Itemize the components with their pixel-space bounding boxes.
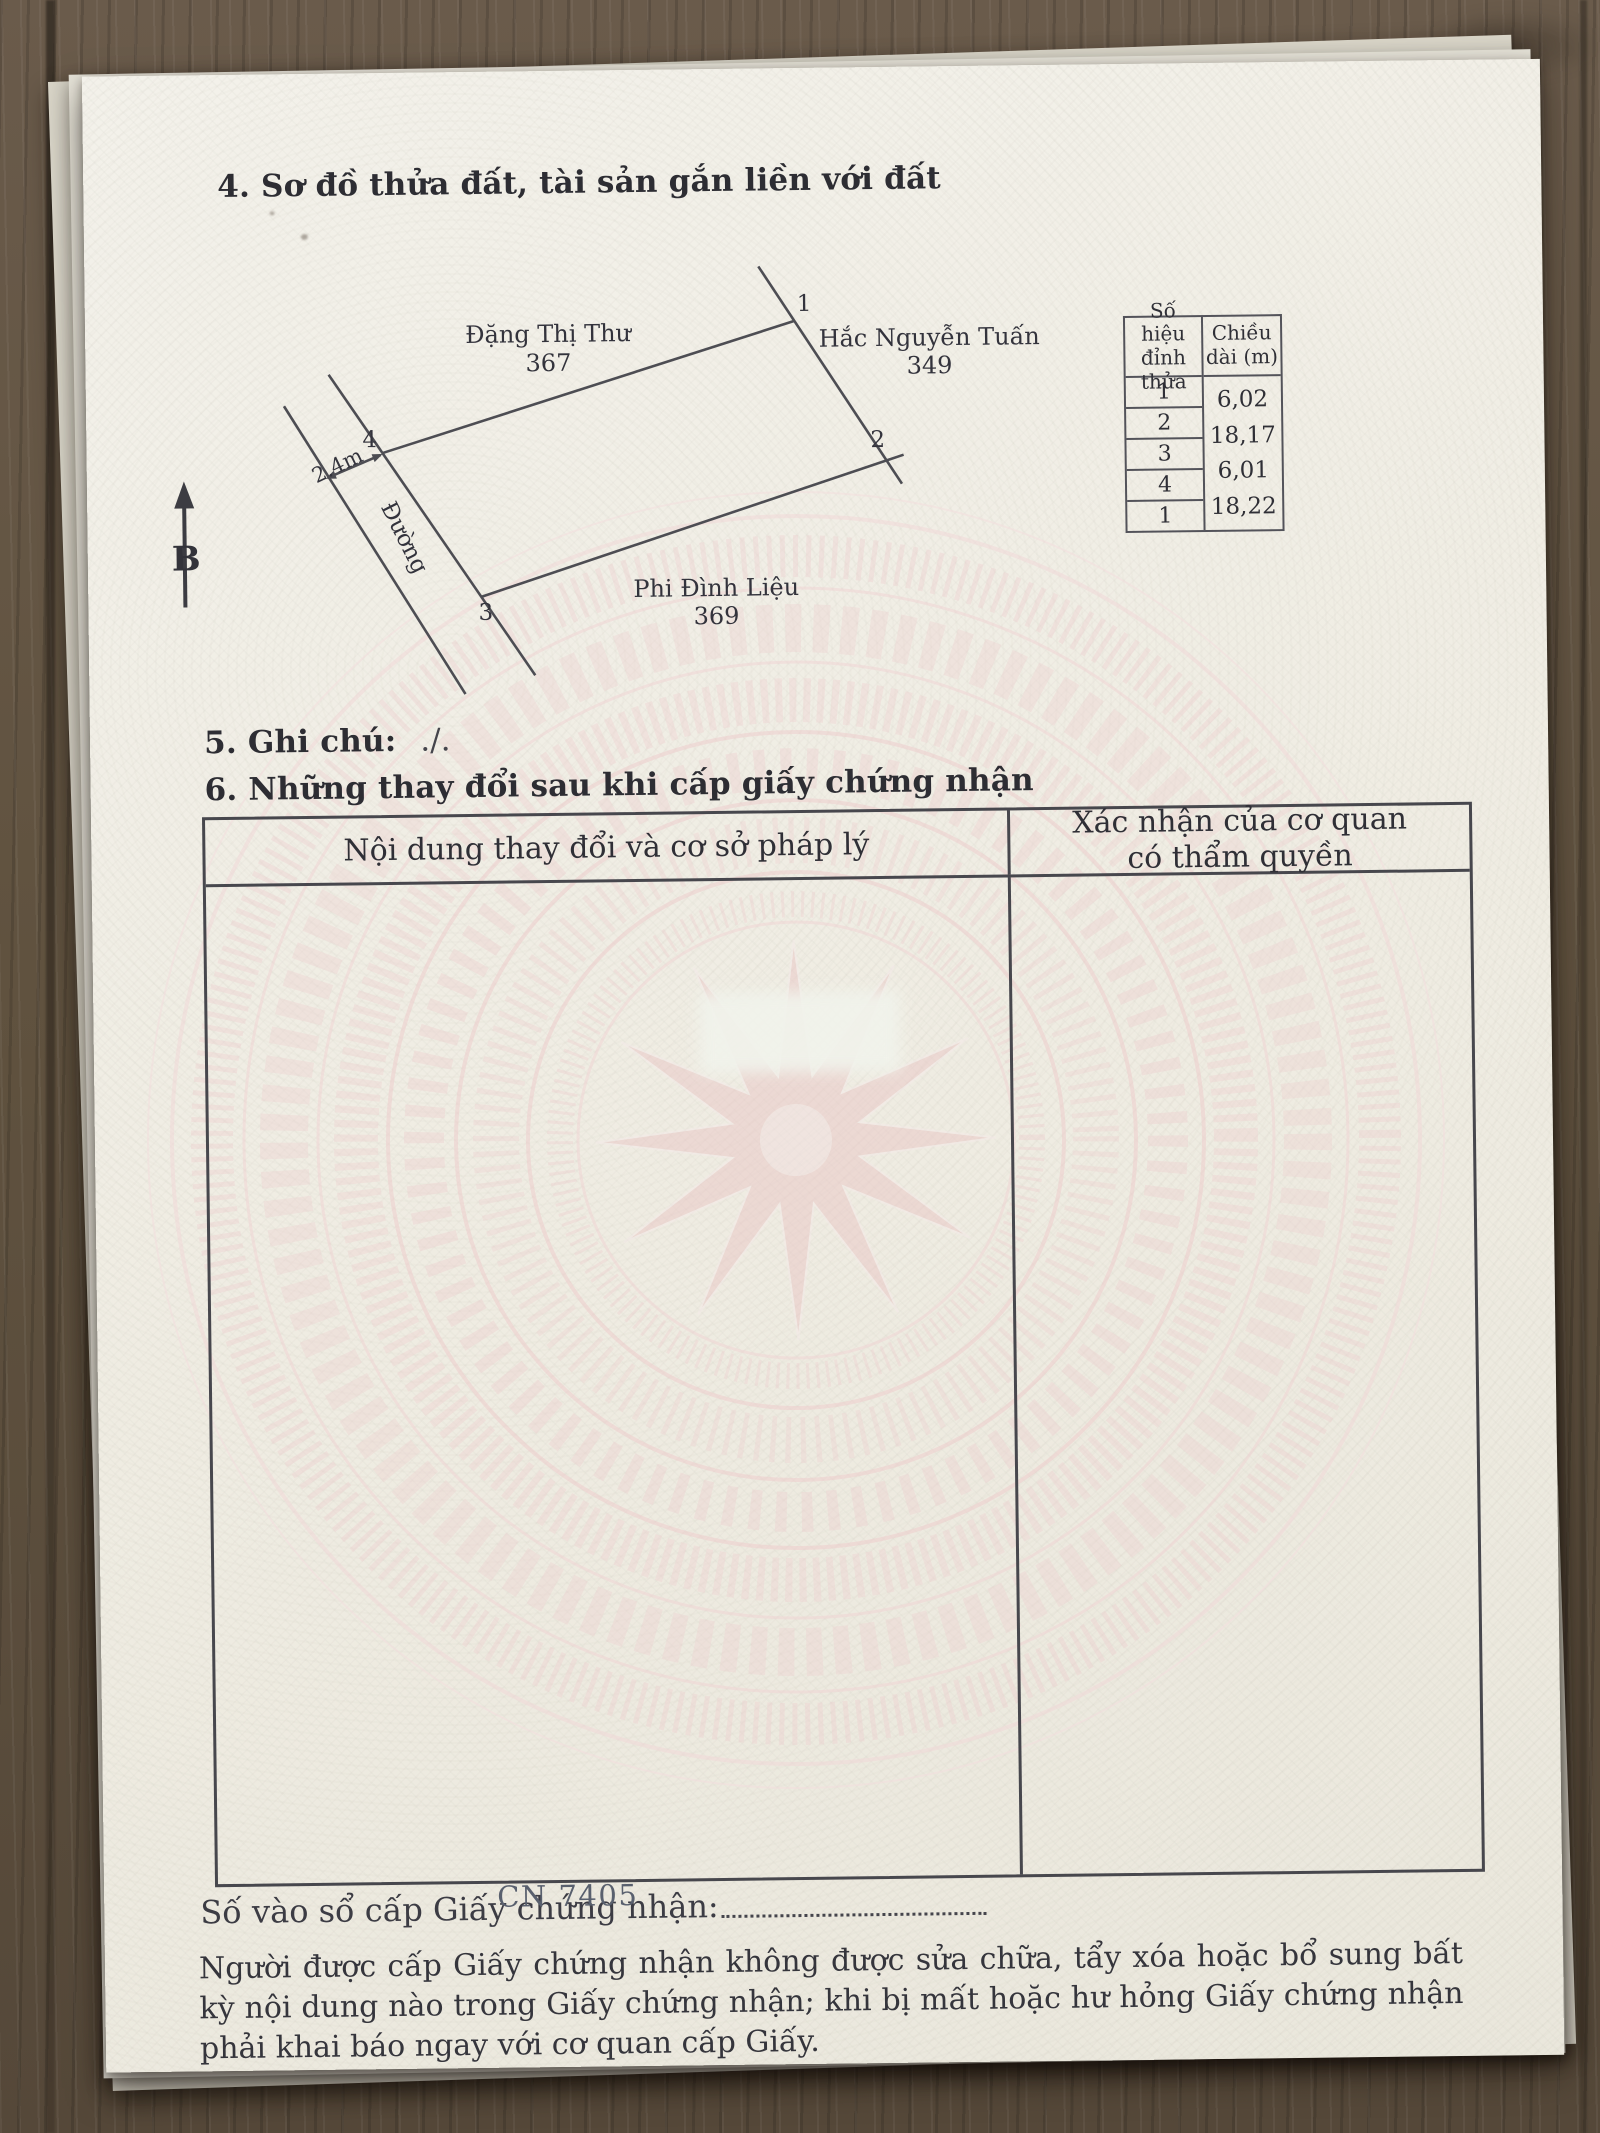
neighbor-top-name: Đặng Thị Thư — [465, 319, 631, 349]
neighbor-top-parcel: 367 — [525, 349, 571, 378]
changes-table-col1-body — [206, 877, 1023, 1884]
section5-value: ./. — [420, 722, 451, 758]
vertex-row: 4 — [1127, 468, 1203, 500]
neighbor-bottom-parcel: 369 — [693, 602, 739, 631]
neighbor-right-parcel: 349 — [906, 351, 952, 380]
ink-speck-2 — [270, 211, 275, 215]
changes-table-col2-body — [1011, 872, 1482, 1875]
vertex-label-3: 3 — [478, 600, 493, 626]
vertex-label-2: 2 — [870, 427, 885, 453]
notice-paragraph: Người được cấp Giấy chứng nhận không đượ… — [199, 1934, 1464, 2069]
measure-table-col1-header: Số hiệu đỉnh thửa — [1125, 317, 1202, 378]
vertex-label-1: 1 — [797, 291, 812, 317]
north-label: B — [172, 539, 201, 579]
changes-table-col1-header: Nội dung thay đổi và cơ sở pháp lý — [205, 810, 1011, 884]
neighbor-bottom-name: Phi Đình Liệu — [633, 573, 799, 603]
neighbor-right-name: Hắc Nguyễn Tuấn — [818, 322, 1039, 353]
vertex-row: 1 — [1127, 499, 1203, 531]
vertex-row: 1 — [1126, 377, 1202, 407]
registry-number: CN 7405 — [497, 1878, 638, 1914]
vertex-row: 3 — [1126, 437, 1202, 469]
length-value: 6,02 — [1204, 386, 1281, 413]
vertex-label-4: 4 — [362, 427, 377, 453]
changes-table-col2-header: Xác nhận của cơ quan có thẩm quyền — [1010, 805, 1470, 875]
section5-row: 5. Ghi chú: ./. — [204, 722, 451, 761]
vertex-row: 2 — [1126, 406, 1202, 438]
photo-scene: 4. Sơ đồ thửa đất, tài sản gắn liền với … — [0, 0, 1600, 2133]
length-value: 18,22 — [1205, 493, 1282, 520]
changes-table: Nội dung thay đổi và cơ sở pháp lý Xác n… — [202, 802, 1485, 1887]
ink-speck-1 — [301, 234, 308, 240]
measure-table-col-lengths: Chiều dài (m) 6,02 18,17 6,01 18,22 — [1203, 316, 1283, 530]
paper-stack: 4. Sơ đồ thửa đất, tài sản gắn liền với … — [0, 0, 1600, 2133]
measure-table-col2-header: Chiều dài (m) — [1203, 316, 1281, 377]
registry-label: Số vào sổ cấp Giấy chứng nhận: — [200, 1887, 719, 1931]
length-value: 18,17 — [1204, 422, 1281, 449]
section5-label: 5. Ghi chú: — [204, 723, 397, 761]
length-value: 6,01 — [1205, 457, 1282, 484]
registry-dotted-line — [722, 1911, 987, 1918]
measure-table: Số hiệu đỉnh thửa 1 2 3 4 1 Chiều dài (m… — [1123, 314, 1285, 533]
measure-table-col-vertices: Số hiệu đỉnh thửa 1 2 3 4 1 — [1125, 317, 1206, 531]
